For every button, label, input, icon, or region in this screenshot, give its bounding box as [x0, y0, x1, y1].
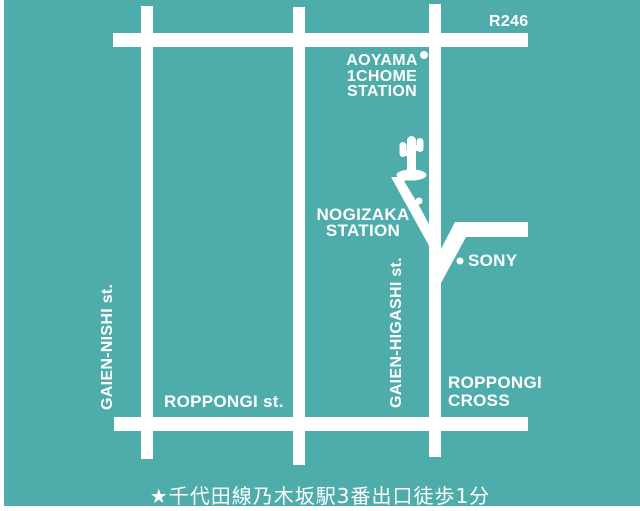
roppongi-cross-line1: ROPPONGI	[448, 374, 542, 392]
aoyama-line3: STATION	[314, 84, 450, 100]
nogizaka-station-dot-icon	[416, 198, 423, 205]
nogizaka-station-label: NOGIZAKA STATION	[295, 207, 431, 239]
aoyama-line1: AOYAMA	[314, 53, 450, 69]
access-caption: ★千代田線乃木坂駅3番出口徒歩1分	[0, 480, 640, 509]
nogizaka-line2: STATION	[295, 223, 431, 239]
road-gaien-nishi	[141, 6, 153, 459]
aoyama-1chome-station-label: AOYAMA 1CHOME STATION	[314, 53, 450, 100]
roppongi-street-label: ROPPONGI st.	[164, 392, 284, 412]
roppongi-cross-line2: CROSS	[448, 392, 542, 410]
aoyama-line2: 1CHOME	[314, 69, 450, 85]
route-246-label: R246	[489, 13, 528, 31]
roppongi-crossing-label: ROPPONGI CROSS	[448, 374, 542, 409]
nogizaka-access-map: R246 AOYAMA 1CHOME STATION NOGIZAKA STAT…	[0, 0, 640, 511]
road-roppongi	[114, 417, 528, 431]
sony-location-dot-icon	[457, 258, 464, 265]
sony-label: SONY	[468, 251, 517, 271]
gaien-nishi-street-label: GAIEN-NISHI st.	[98, 284, 118, 410]
gaien-higashi-street-label: GAIEN-HIGASHI st.	[387, 257, 407, 408]
road-r246	[113, 33, 528, 47]
